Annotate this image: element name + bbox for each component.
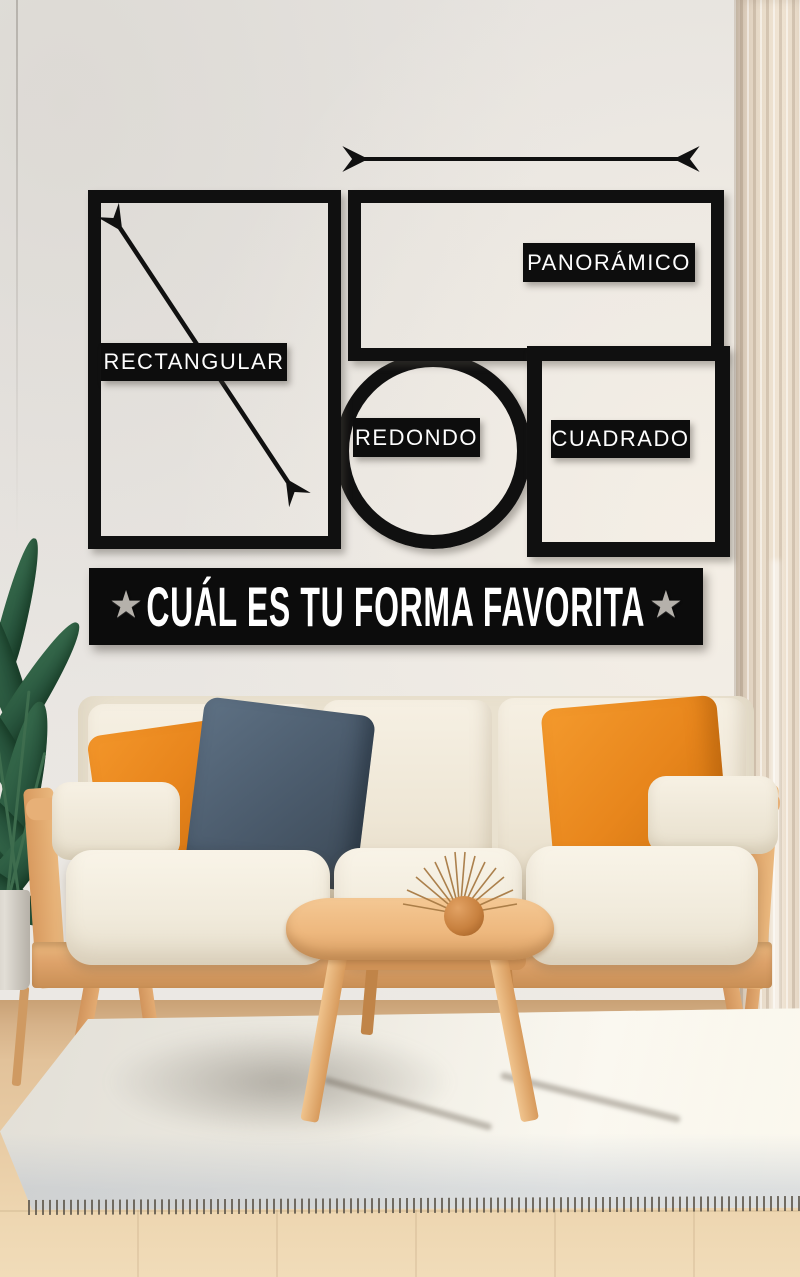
banner-text-inner: CUÁL ES TU FORMA FAVORITA xyxy=(147,574,646,639)
question-banner: ★ CUÁL ES TU FORMA FAVORITA ★ xyxy=(89,568,703,645)
panoramico-label-text: PANORÁMICO xyxy=(527,250,691,276)
wooden-vase xyxy=(444,896,484,936)
sofa-seat-cushion xyxy=(526,846,758,965)
horizontal-double-arrow-icon xyxy=(346,142,696,176)
redondo-label: REDONDO xyxy=(353,418,480,457)
cuadrado-label: CUADRADO xyxy=(551,420,690,458)
banner-text: CUÁL ES TU FORMA FAVORITA xyxy=(89,568,703,645)
living-room-frame-shapes-poster: RECTANGULAR PANORÁMICO REDONDO CUADRADO … xyxy=(0,0,800,1277)
panoramico-label: PANORÁMICO xyxy=(523,243,695,282)
redondo-label-text: REDONDO xyxy=(355,425,478,451)
sofa-seat-cushion xyxy=(66,850,330,965)
rectangular-label: RECTANGULAR xyxy=(101,343,287,381)
cuadrado-label-text: CUADRADO xyxy=(552,426,690,452)
area-rug xyxy=(0,1002,800,1214)
star-icon-right: ★ xyxy=(649,582,683,627)
sofa-arm-cushion-left xyxy=(52,782,180,860)
rectangular-label-text: RECTANGULAR xyxy=(103,349,284,375)
floor-plank-seams xyxy=(0,1210,800,1277)
sofa-arm-cushion-right xyxy=(648,776,778,854)
plant-pot xyxy=(0,890,30,990)
wall-corner-line xyxy=(16,0,18,540)
sofa-shadow xyxy=(40,1007,520,1157)
